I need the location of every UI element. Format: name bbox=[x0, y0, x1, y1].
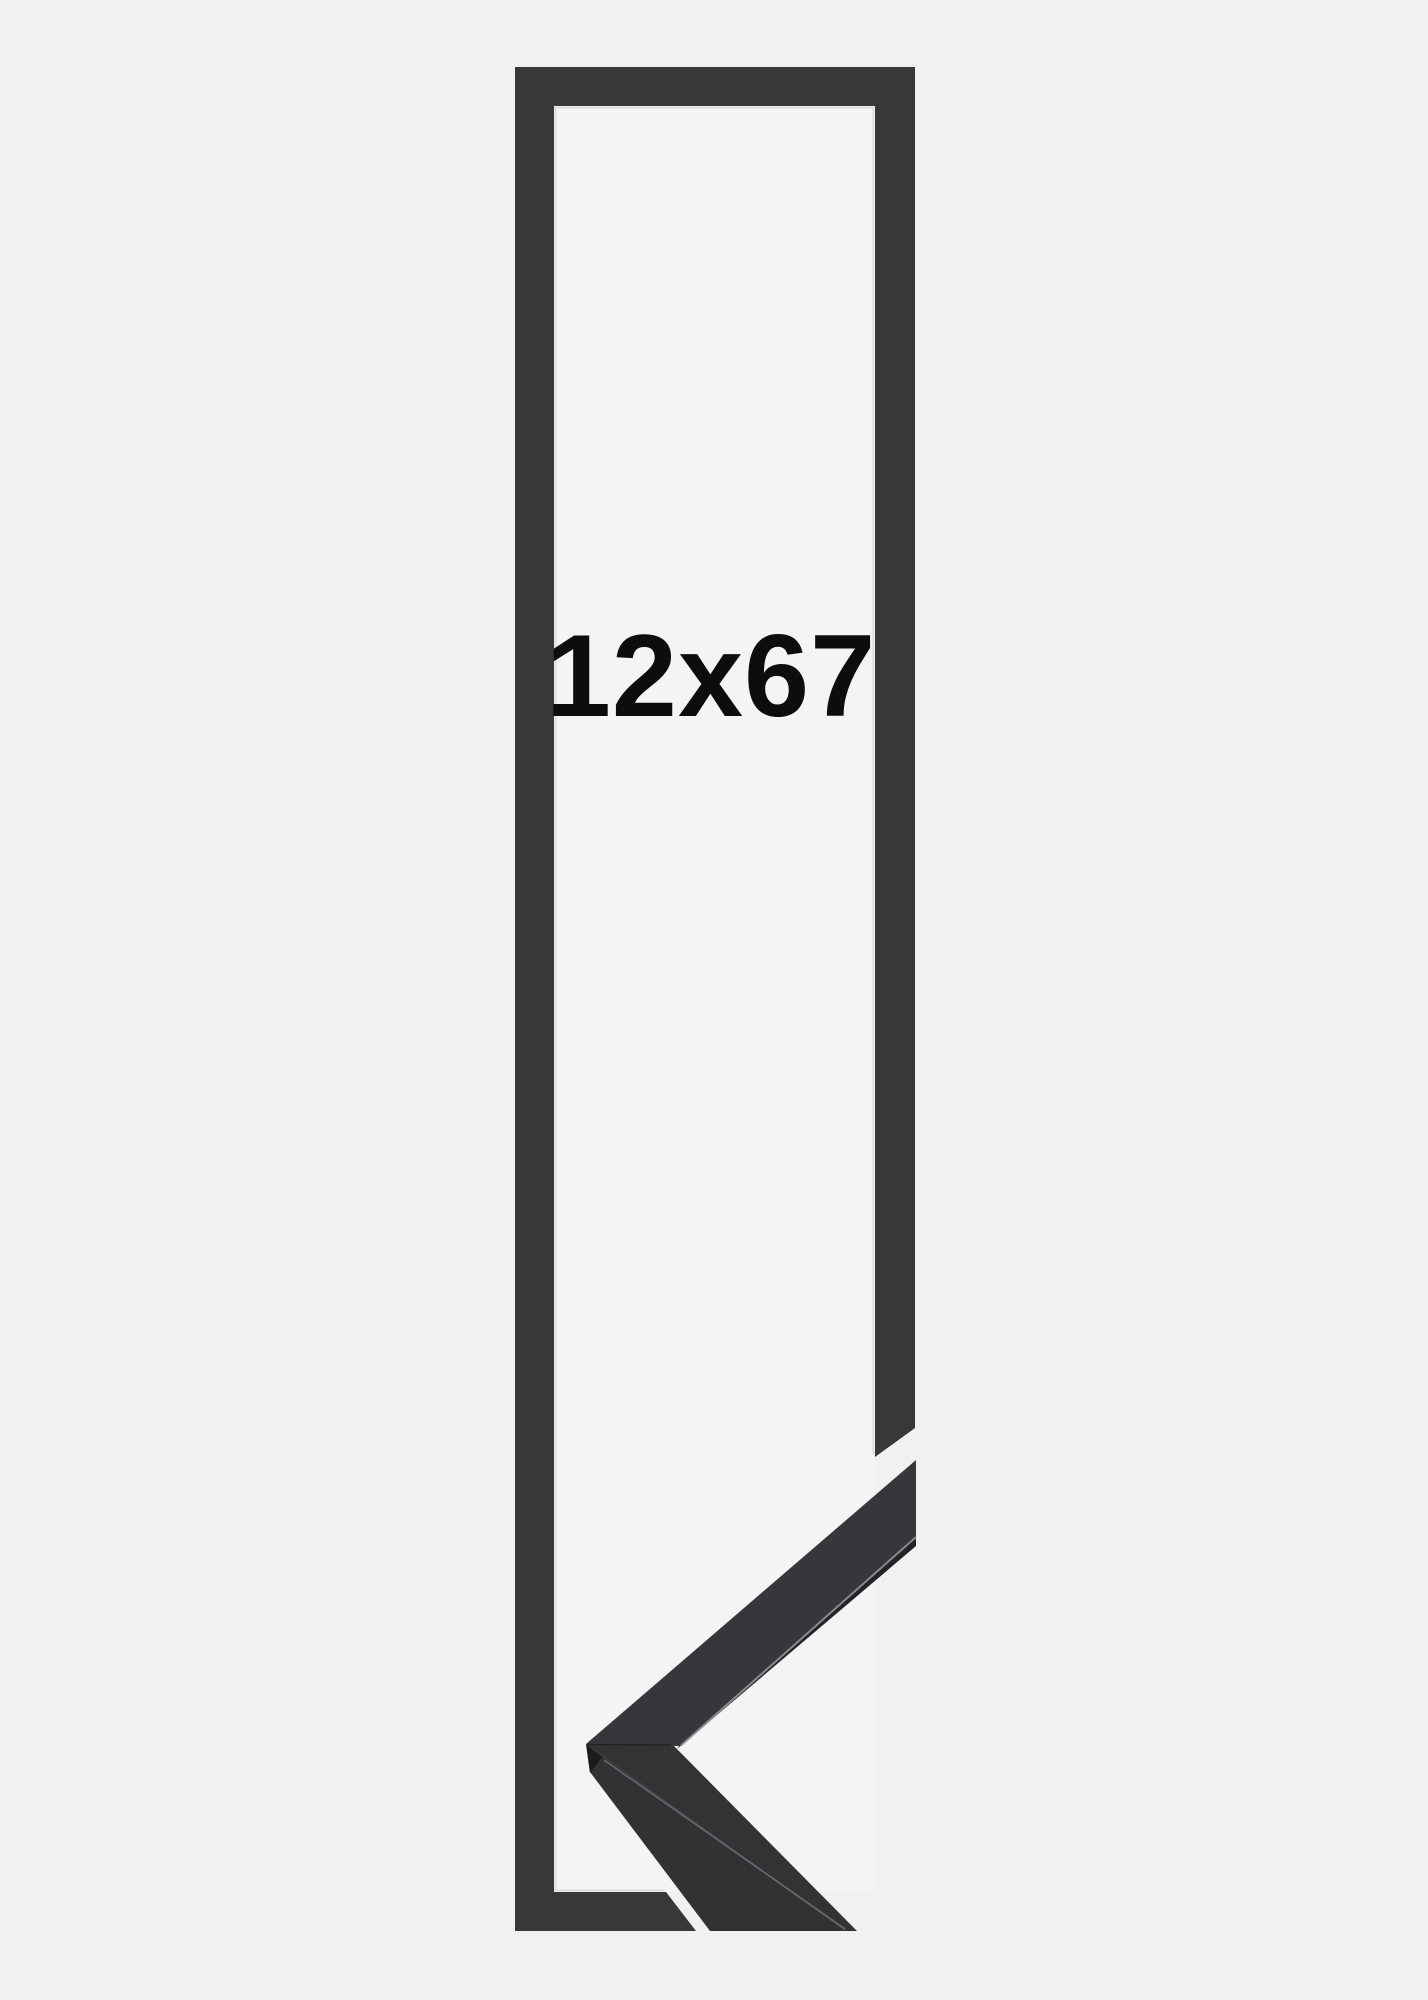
frame-right-bar bbox=[875, 67, 915, 1457]
frame-left-bar bbox=[515, 67, 554, 1931]
moulding-miter-seam bbox=[587, 1745, 671, 1746]
frame-opening-background bbox=[554, 106, 875, 1892]
frame-top-bar bbox=[515, 67, 915, 106]
frame-bottom-bar bbox=[515, 1892, 696, 1931]
size-label: 12x67 bbox=[546, 610, 876, 741]
product-photo: 12x67 bbox=[0, 0, 1428, 2000]
frame-product-image: 12x67 bbox=[0, 0, 1428, 2000]
